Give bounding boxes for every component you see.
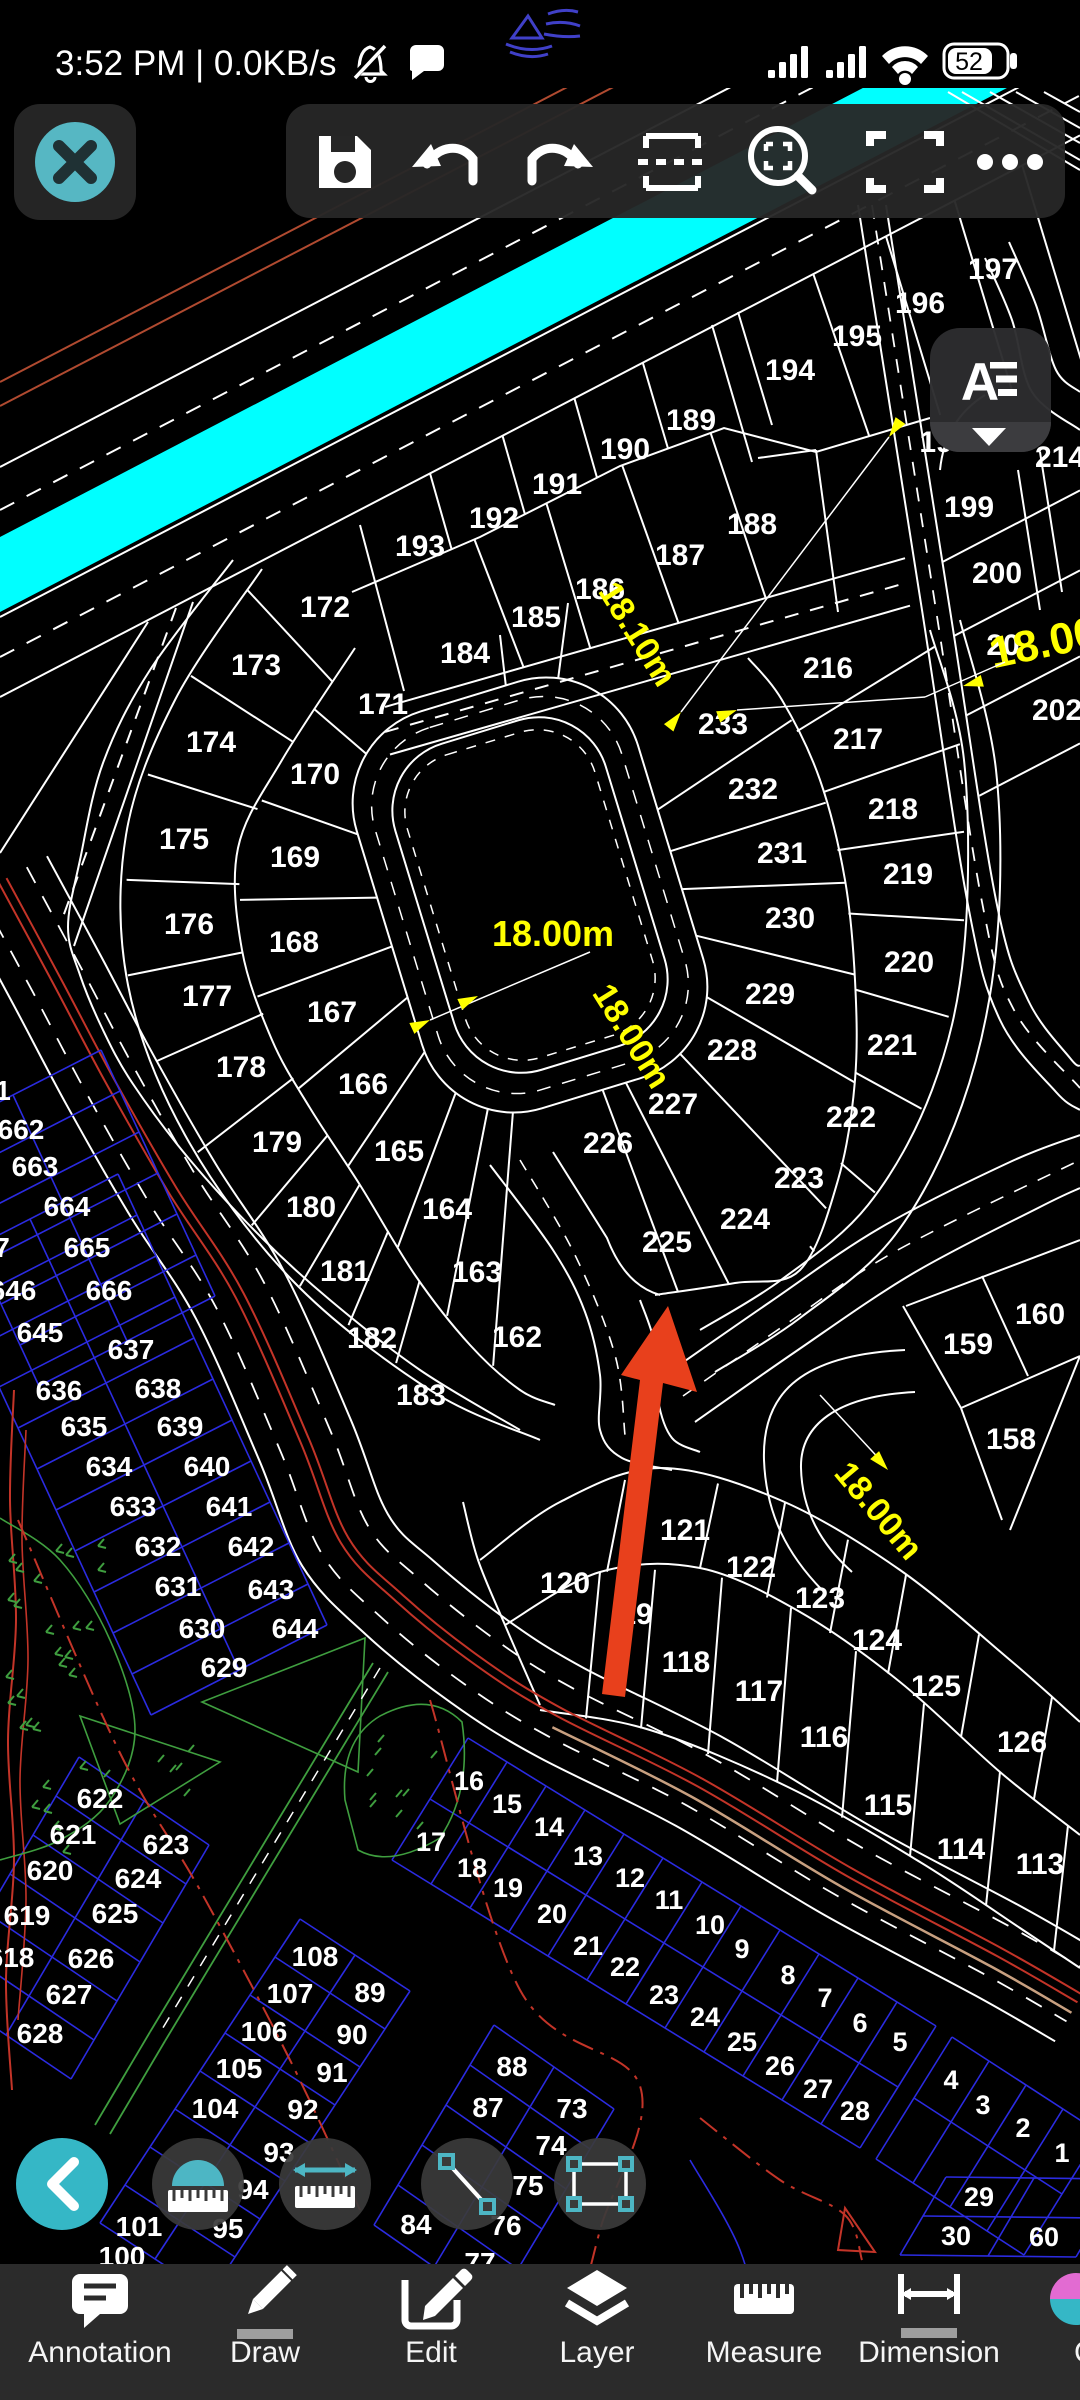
- svg-text:107: 107: [267, 1978, 314, 2009]
- svg-text:25: 25: [727, 2027, 757, 2057]
- svg-text:28: 28: [840, 2096, 870, 2126]
- svg-text:11: 11: [655, 1885, 684, 1915]
- svg-text:626: 626: [68, 1943, 115, 1974]
- svg-text:226: 226: [583, 1127, 633, 1160]
- svg-text:663: 663: [12, 1151, 59, 1182]
- svg-text:106: 106: [241, 2016, 288, 2047]
- svg-text:113: 113: [1016, 1848, 1064, 1881]
- svg-text:164: 164: [422, 1193, 472, 1226]
- svg-text:623: 623: [143, 1829, 190, 1860]
- svg-text:18: 18: [457, 1853, 487, 1883]
- svg-text:194: 194: [765, 354, 815, 387]
- svg-text:125: 125: [911, 1670, 961, 1703]
- svg-text:14: 14: [534, 1812, 564, 1842]
- svg-text:121: 121: [660, 1514, 710, 1547]
- svg-text:621: 621: [50, 1819, 97, 1850]
- svg-text:7: 7: [817, 1983, 832, 2013]
- svg-text:126: 126: [997, 1726, 1047, 1759]
- svg-text:3: 3: [975, 2090, 990, 2120]
- svg-text:643: 643: [248, 1574, 295, 1605]
- svg-text:3:52 PM | 0.0KB/s: 3:52 PM | 0.0KB/s: [55, 44, 336, 83]
- svg-text:220: 220: [884, 946, 934, 979]
- svg-text:176: 176: [164, 908, 214, 941]
- svg-text:87: 87: [472, 2092, 503, 2123]
- svg-text:642: 642: [228, 1531, 275, 1562]
- svg-text:A: A: [961, 353, 999, 412]
- svg-text:177: 177: [182, 980, 232, 1013]
- svg-text:120: 120: [540, 1567, 590, 1600]
- svg-text:1: 1: [1054, 2138, 1069, 2168]
- svg-text:191: 191: [532, 468, 582, 501]
- svg-text:9: 9: [734, 1934, 749, 1964]
- svg-text:214: 214: [1035, 441, 1080, 474]
- svg-text:224: 224: [720, 1203, 770, 1236]
- svg-text:638: 638: [135, 1373, 182, 1404]
- svg-text:89: 89: [354, 1977, 385, 2008]
- svg-text:185: 185: [511, 601, 561, 634]
- svg-text:189: 189: [666, 404, 716, 437]
- svg-text:629: 629: [201, 1652, 248, 1683]
- svg-text:229: 229: [745, 978, 795, 1011]
- svg-text:Draw: Draw: [230, 2336, 300, 2369]
- svg-text:665: 665: [64, 1232, 111, 1263]
- svg-text:632: 632: [135, 1531, 182, 1562]
- svg-text:73: 73: [556, 2093, 587, 2124]
- svg-text:171: 171: [358, 688, 408, 721]
- svg-text:Edit: Edit: [405, 2336, 457, 2369]
- svg-text:170: 170: [290, 758, 340, 791]
- svg-text:Layer: Layer: [559, 2336, 634, 2369]
- svg-text:183: 183: [396, 1379, 446, 1412]
- svg-text:108: 108: [292, 1941, 339, 1972]
- svg-text:641: 641: [206, 1491, 253, 1522]
- svg-text:631: 631: [155, 1571, 202, 1602]
- svg-text:178: 178: [216, 1051, 266, 1084]
- svg-text:163: 163: [452, 1256, 502, 1289]
- svg-text:122: 122: [726, 1551, 776, 1584]
- svg-text:7: 7: [0, 1232, 10, 1263]
- svg-text:101: 101: [116, 2211, 163, 2242]
- svg-text:219: 219: [883, 858, 933, 891]
- svg-text:622: 622: [77, 1783, 124, 1814]
- svg-text:190: 190: [600, 433, 650, 466]
- svg-text:Annotation: Annotation: [28, 2336, 171, 2369]
- svg-text:Dimension: Dimension: [858, 2336, 1000, 2369]
- svg-text:618: 618: [0, 1942, 34, 1973]
- svg-text:104: 104: [192, 2093, 239, 2124]
- svg-text:91: 91: [316, 2057, 347, 2088]
- svg-text:640: 640: [184, 1451, 231, 1482]
- svg-text:23: 23: [649, 1980, 679, 2010]
- svg-text:637: 637: [108, 1334, 155, 1365]
- svg-text:182: 182: [347, 1322, 397, 1355]
- svg-text:15: 15: [492, 1789, 522, 1819]
- svg-text:199: 199: [944, 491, 994, 524]
- svg-text:22: 22: [610, 1952, 640, 1982]
- svg-text:636: 636: [36, 1375, 83, 1406]
- svg-text:52: 52: [955, 48, 983, 76]
- svg-text:197: 197: [968, 253, 1018, 286]
- svg-text:90: 90: [336, 2019, 367, 2050]
- svg-text:181: 181: [320, 1255, 370, 1288]
- svg-text:5: 5: [892, 2027, 907, 2057]
- svg-text:634: 634: [86, 1451, 133, 1482]
- svg-text:124: 124: [852, 1624, 902, 1657]
- svg-text:105: 105: [216, 2053, 263, 2084]
- svg-text:10: 10: [695, 1910, 725, 1940]
- svg-text:92: 92: [287, 2094, 318, 2125]
- svg-text:664: 664: [44, 1191, 91, 1222]
- svg-text:193: 193: [395, 530, 445, 563]
- svg-text:165: 165: [374, 1135, 424, 1168]
- svg-text:20: 20: [537, 1899, 567, 1929]
- svg-text:118: 118: [662, 1646, 710, 1679]
- svg-text:162: 162: [492, 1321, 542, 1354]
- svg-text:202: 202: [1032, 694, 1080, 727]
- svg-text:624: 624: [115, 1863, 162, 1894]
- svg-text:168: 168: [269, 926, 319, 959]
- svg-text:188: 188: [727, 508, 777, 541]
- svg-text:225: 225: [642, 1226, 692, 1259]
- svg-text:227: 227: [648, 1088, 698, 1121]
- svg-text:666: 666: [86, 1275, 133, 1306]
- svg-text:172: 172: [300, 591, 350, 624]
- svg-text:114: 114: [937, 1833, 986, 1866]
- svg-text:646: 646: [0, 1275, 36, 1306]
- svg-text:13: 13: [573, 1841, 603, 1871]
- svg-text:179: 179: [252, 1126, 302, 1159]
- svg-text:60: 60: [1029, 2222, 1059, 2252]
- svg-text:24: 24: [690, 2002, 720, 2032]
- svg-text:217: 217: [833, 723, 883, 756]
- svg-text:116: 116: [800, 1721, 848, 1754]
- svg-text:8: 8: [780, 1960, 795, 1990]
- svg-text:218: 218: [868, 793, 918, 826]
- svg-text:17: 17: [416, 1827, 446, 1857]
- svg-text:1: 1: [0, 1075, 11, 1106]
- svg-text:635: 635: [61, 1411, 108, 1442]
- svg-text:166: 166: [338, 1068, 388, 1101]
- svg-text:620: 620: [27, 1855, 74, 1886]
- svg-text:88: 88: [496, 2051, 527, 2082]
- svg-text:184: 184: [440, 637, 490, 670]
- svg-text:117: 117: [735, 1675, 783, 1708]
- svg-text:27: 27: [803, 2074, 833, 2104]
- svg-text:21: 21: [573, 1931, 603, 1961]
- svg-text:2: 2: [1015, 2113, 1030, 2143]
- svg-text:223: 223: [774, 1162, 824, 1195]
- svg-text:230: 230: [765, 902, 815, 935]
- svg-text:232: 232: [728, 773, 778, 806]
- svg-text:6: 6: [852, 2008, 867, 2038]
- svg-text:123: 123: [795, 1582, 845, 1615]
- svg-text:187: 187: [655, 539, 705, 572]
- svg-text:644: 644: [272, 1613, 319, 1644]
- svg-text:175: 175: [159, 823, 209, 856]
- svg-text:29: 29: [964, 2182, 994, 2212]
- svg-text:633: 633: [110, 1491, 157, 1522]
- svg-text:628: 628: [17, 2018, 64, 2049]
- svg-text:228: 228: [707, 1034, 757, 1067]
- svg-text:30: 30: [941, 2221, 971, 2251]
- svg-text:645: 645: [17, 1317, 64, 1348]
- svg-text:221: 221: [867, 1029, 917, 1062]
- svg-text:196: 196: [895, 287, 945, 320]
- svg-text:180: 180: [286, 1191, 336, 1224]
- svg-text:195: 195: [832, 320, 882, 353]
- svg-text:26: 26: [765, 2051, 795, 2081]
- svg-text:Measure: Measure: [706, 2336, 823, 2369]
- svg-text:160: 160: [1015, 1298, 1065, 1331]
- svg-text:639: 639: [157, 1411, 204, 1442]
- svg-text:200: 200: [972, 557, 1022, 590]
- svg-text:74: 74: [535, 2130, 567, 2161]
- svg-text:216: 216: [803, 652, 853, 685]
- svg-text:627: 627: [46, 1979, 93, 2010]
- svg-text:C: C: [1074, 2336, 1080, 2369]
- svg-text:169: 169: [270, 841, 320, 874]
- svg-text:630: 630: [179, 1613, 226, 1644]
- svg-text:231: 231: [757, 837, 807, 870]
- svg-text:18.00m: 18.00m: [492, 913, 614, 954]
- svg-text:4: 4: [943, 2065, 958, 2095]
- svg-text:158: 158: [986, 1423, 1036, 1456]
- svg-text:19: 19: [493, 1873, 523, 1903]
- svg-text:222: 222: [826, 1101, 876, 1134]
- svg-text:159: 159: [943, 1328, 993, 1361]
- svg-text:619: 619: [4, 1900, 51, 1931]
- svg-text:16: 16: [454, 1766, 484, 1796]
- svg-text:662: 662: [0, 1114, 44, 1145]
- svg-text:115: 115: [864, 1789, 912, 1822]
- svg-text:174: 174: [186, 726, 236, 759]
- svg-text:625: 625: [92, 1898, 139, 1929]
- svg-text:12: 12: [615, 1863, 645, 1893]
- svg-text:192: 192: [469, 502, 519, 535]
- svg-text:75: 75: [512, 2170, 543, 2201]
- svg-text:167: 167: [307, 996, 357, 1029]
- svg-text:84: 84: [400, 2209, 432, 2240]
- svg-text:173: 173: [231, 649, 281, 682]
